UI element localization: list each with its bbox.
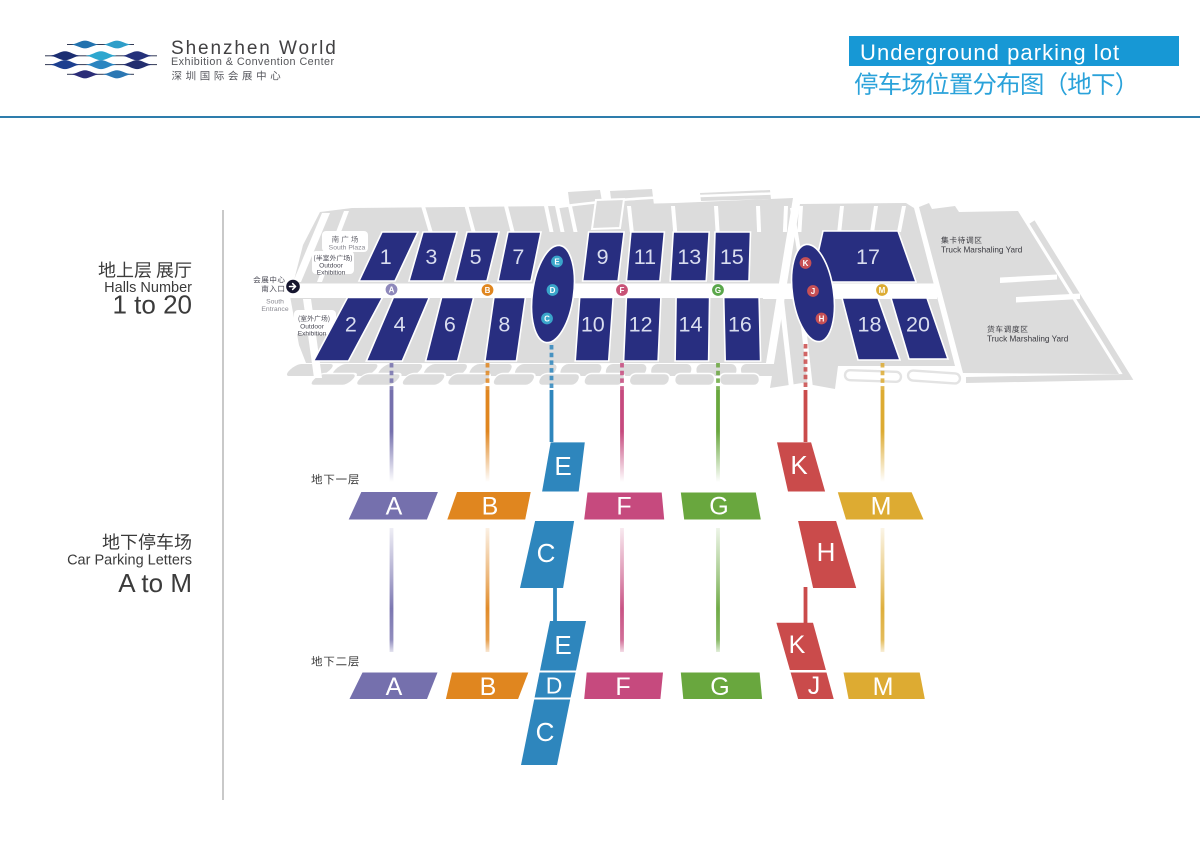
svg-text:E: E bbox=[554, 451, 571, 481]
svg-text:H: H bbox=[817, 537, 836, 567]
svg-text:A: A bbox=[386, 673, 403, 701]
svg-text:Outdoor: Outdoor bbox=[300, 324, 325, 331]
svg-text:South: South bbox=[266, 299, 284, 306]
svg-text:11: 11 bbox=[634, 245, 656, 269]
svg-text:E: E bbox=[554, 258, 560, 267]
svg-text:7: 7 bbox=[512, 245, 524, 269]
svg-text:Entrance: Entrance bbox=[261, 306, 288, 313]
svg-text:20: 20 bbox=[906, 313, 930, 337]
svg-text:F: F bbox=[615, 673, 630, 701]
svg-text:D: D bbox=[550, 286, 556, 295]
svg-text:C: C bbox=[536, 717, 555, 747]
svg-text:A to M: A to M bbox=[118, 568, 192, 598]
svg-text:K: K bbox=[790, 450, 808, 480]
svg-text:18: 18 bbox=[858, 313, 882, 337]
svg-text:2: 2 bbox=[345, 313, 357, 337]
svg-text:9: 9 bbox=[597, 245, 609, 269]
svg-text:D: D bbox=[546, 673, 563, 699]
svg-text:8: 8 bbox=[498, 313, 510, 337]
svg-text:15: 15 bbox=[720, 245, 744, 269]
svg-text:13: 13 bbox=[677, 245, 701, 269]
svg-text:G: G bbox=[710, 673, 729, 701]
svg-text:4: 4 bbox=[394, 313, 406, 337]
svg-text:B: B bbox=[482, 493, 499, 521]
svg-text:Exhibition: Exhibition bbox=[298, 331, 327, 338]
svg-text:Outdoor: Outdoor bbox=[319, 263, 344, 270]
svg-text:6: 6 bbox=[444, 313, 456, 337]
svg-text:5: 5 bbox=[470, 245, 482, 269]
svg-text:F: F bbox=[620, 286, 625, 295]
svg-text:Exhibition: Exhibition bbox=[317, 270, 346, 277]
svg-text:F: F bbox=[616, 493, 631, 521]
svg-text:A: A bbox=[386, 493, 403, 521]
svg-text:1: 1 bbox=[380, 245, 392, 269]
svg-text:12: 12 bbox=[629, 313, 653, 337]
svg-text:14: 14 bbox=[679, 313, 703, 337]
svg-text:G: G bbox=[715, 286, 721, 295]
svg-text:Truck Marshaling Yard: Truck Marshaling Yard bbox=[987, 335, 1069, 344]
svg-text:K: K bbox=[803, 259, 809, 268]
svg-text:South Plaza: South Plaza bbox=[329, 245, 366, 252]
svg-text:E: E bbox=[554, 630, 571, 660]
svg-text:K: K bbox=[789, 631, 806, 659]
svg-text:B: B bbox=[480, 673, 497, 701]
svg-text:M: M bbox=[879, 286, 886, 295]
svg-text:17: 17 bbox=[856, 245, 880, 269]
svg-text:G: G bbox=[709, 493, 728, 521]
svg-text:M: M bbox=[873, 673, 894, 701]
svg-text:10: 10 bbox=[581, 313, 605, 337]
svg-text:1 to 20: 1 to 20 bbox=[112, 290, 192, 320]
svg-text:M: M bbox=[871, 493, 892, 521]
svg-text:C: C bbox=[544, 315, 550, 324]
svg-text:Truck Marshaling Yard: Truck Marshaling Yard bbox=[941, 246, 1023, 255]
svg-text:C: C bbox=[537, 538, 556, 568]
svg-text:J: J bbox=[808, 672, 821, 700]
svg-text:H: H bbox=[819, 315, 825, 324]
svg-text:A: A bbox=[389, 286, 395, 295]
svg-text:16: 16 bbox=[728, 313, 752, 337]
svg-text:B: B bbox=[485, 286, 491, 295]
svg-text:3: 3 bbox=[425, 245, 437, 269]
svg-text:Car Parking Letters: Car Parking Letters bbox=[67, 553, 192, 569]
svg-text:J: J bbox=[811, 287, 815, 296]
